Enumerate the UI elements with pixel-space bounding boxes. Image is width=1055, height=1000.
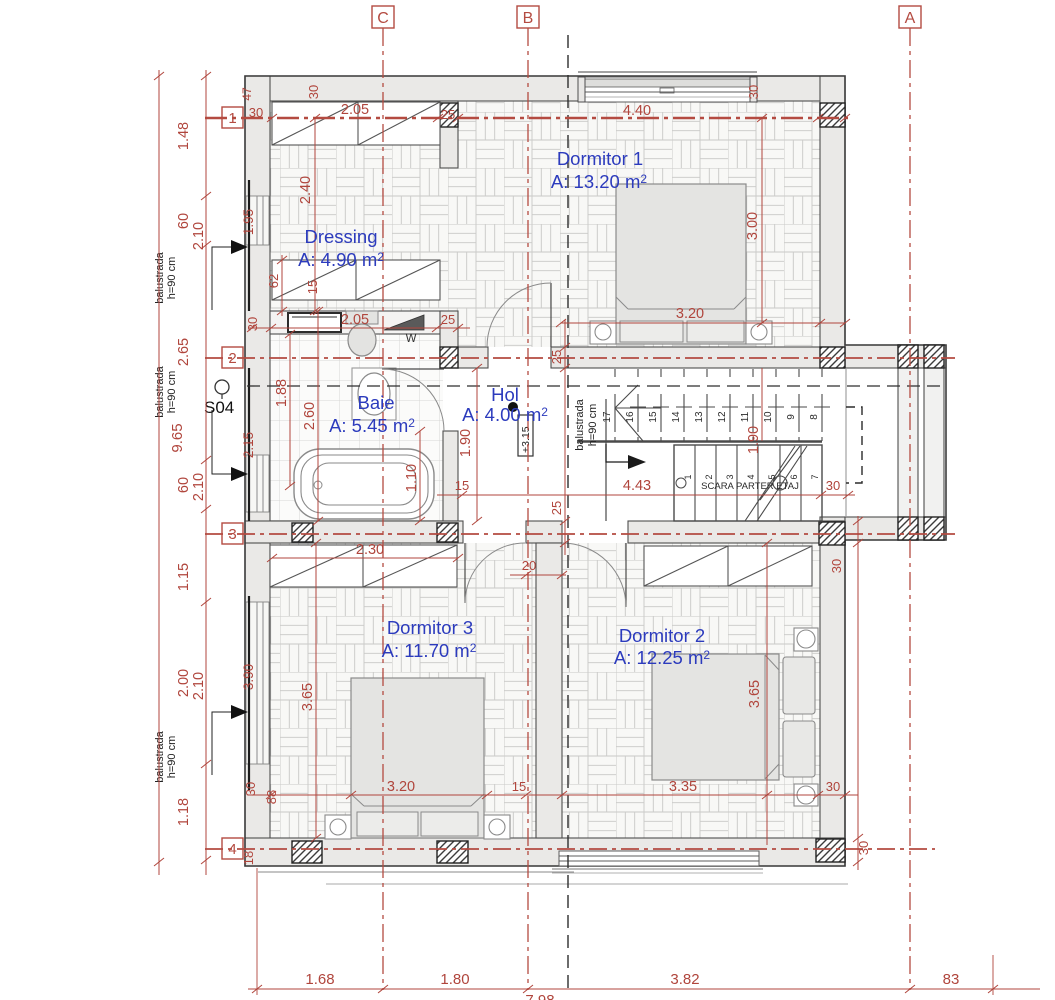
svg-text:h=90 cm: h=90 cm xyxy=(166,257,178,300)
svg-text:2.15: 2.15 xyxy=(241,432,256,458)
svg-text:A: 11.70 m2: A: 11.70 m2 xyxy=(382,640,477,661)
svg-text:Dormitor 3: Dormitor 3 xyxy=(387,617,473,638)
svg-text:16: 16 xyxy=(625,411,636,423)
svg-text:3.90: 3.90 xyxy=(241,664,256,690)
svg-text:Dormitor 1: Dormitor 1 xyxy=(557,148,643,169)
svg-text:4: 4 xyxy=(746,474,756,479)
svg-text:15: 15 xyxy=(305,280,320,294)
svg-text:A: 4.90 m2: A: 4.90 m2 xyxy=(298,249,384,270)
svg-text:15: 15 xyxy=(648,411,659,423)
svg-text:1.80: 1.80 xyxy=(440,971,469,988)
svg-text:2.30: 2.30 xyxy=(356,542,384,558)
svg-text:1.18: 1.18 xyxy=(176,798,192,826)
svg-text:30: 30 xyxy=(826,779,840,794)
svg-text:25: 25 xyxy=(549,350,564,364)
svg-text:2.60: 2.60 xyxy=(302,402,318,430)
svg-text:A: 5.45 m2: A: 5.45 m2 xyxy=(329,415,415,436)
svg-text:4.43: 4.43 xyxy=(623,478,651,494)
svg-text:3.20: 3.20 xyxy=(387,779,415,795)
svg-text:SCARA PARTER ETAJ: SCARA PARTER ETAJ xyxy=(701,481,799,492)
svg-text:4: 4 xyxy=(228,841,236,858)
svg-text:h=90 cm: h=90 cm xyxy=(587,404,599,447)
svg-text:2.00: 2.00 xyxy=(176,669,192,697)
svg-text:A: A xyxy=(905,10,916,27)
svg-text:1.95: 1.95 xyxy=(241,209,256,235)
svg-text:47: 47 xyxy=(240,87,254,101)
svg-text:25: 25 xyxy=(549,501,564,515)
svg-text:3.20: 3.20 xyxy=(676,306,704,322)
svg-text:3: 3 xyxy=(725,474,735,479)
svg-text:S04: S04 xyxy=(204,398,234,417)
svg-text:h=90 cm: h=90 cm xyxy=(166,736,178,779)
svg-text:1.10: 1.10 xyxy=(404,464,420,492)
svg-text:2.65: 2.65 xyxy=(176,338,192,366)
svg-text:3.65: 3.65 xyxy=(747,680,763,708)
svg-text:1: 1 xyxy=(683,474,693,479)
svg-text:2.05: 2.05 xyxy=(341,102,369,118)
svg-text:1: 1 xyxy=(228,110,236,127)
svg-text:W: W xyxy=(406,333,417,345)
svg-text:1.48: 1.48 xyxy=(176,122,192,150)
svg-text:17: 17 xyxy=(602,411,613,423)
svg-text:9: 9 xyxy=(786,414,797,420)
svg-text:Baie: Baie xyxy=(357,392,394,413)
svg-text:C: C xyxy=(377,10,389,27)
svg-text:7.98: 7.98 xyxy=(525,992,554,1000)
svg-text:30: 30 xyxy=(856,841,871,855)
svg-text:10: 10 xyxy=(763,411,774,423)
svg-text:3.35: 3.35 xyxy=(669,779,697,795)
svg-text:2.40: 2.40 xyxy=(298,176,314,204)
svg-text:balustrada: balustrada xyxy=(154,730,166,782)
svg-text:5: 5 xyxy=(767,474,777,479)
svg-text:8: 8 xyxy=(809,414,820,420)
svg-text:2: 2 xyxy=(704,474,714,479)
svg-text:12: 12 xyxy=(717,411,728,423)
svg-text:30: 30 xyxy=(245,317,260,331)
svg-text:3.65: 3.65 xyxy=(300,683,316,711)
svg-text:1.90: 1.90 xyxy=(746,426,762,454)
svg-text:3: 3 xyxy=(228,526,236,543)
svg-text:25: 25 xyxy=(441,312,455,327)
svg-text:62: 62 xyxy=(266,274,281,288)
svg-text:A: 4.00 m2: A: 4.00 m2 xyxy=(462,404,548,425)
svg-text:balustrada: balustrada xyxy=(154,251,166,303)
svg-text:7: 7 xyxy=(810,474,820,479)
svg-text:Hol: Hol xyxy=(491,384,519,405)
svg-text:4.40: 4.40 xyxy=(623,103,651,119)
svg-text:83: 83 xyxy=(943,971,960,988)
svg-text:h=90 cm: h=90 cm xyxy=(166,371,178,414)
svg-text:Dormitor 2: Dormitor 2 xyxy=(619,625,705,646)
svg-text:15: 15 xyxy=(512,779,526,794)
svg-text:balustrada: balustrada xyxy=(154,365,166,417)
svg-text:1.68: 1.68 xyxy=(305,971,334,988)
svg-text:11: 11 xyxy=(740,411,751,422)
svg-text:2.05: 2.05 xyxy=(341,312,369,328)
svg-text:30: 30 xyxy=(746,85,761,99)
svg-text:30: 30 xyxy=(829,559,844,573)
svg-text:60: 60 xyxy=(176,477,192,493)
svg-text:6: 6 xyxy=(789,474,799,479)
svg-text:1.90: 1.90 xyxy=(458,429,474,457)
svg-text:3.00: 3.00 xyxy=(745,212,761,240)
svg-text:25: 25 xyxy=(441,107,455,122)
svg-text:88: 88 xyxy=(264,790,279,804)
svg-text:13: 13 xyxy=(694,411,705,423)
svg-text:30: 30 xyxy=(826,478,840,493)
svg-text:A: 13.20 m2: A: 13.20 m2 xyxy=(551,171,647,192)
svg-text:2.10: 2.10 xyxy=(191,473,207,501)
svg-text:30: 30 xyxy=(306,85,321,99)
svg-text:60: 60 xyxy=(176,213,192,229)
svg-text:15: 15 xyxy=(455,478,469,493)
svg-text:1.88: 1.88 xyxy=(274,379,290,407)
svg-text:30: 30 xyxy=(243,782,258,796)
svg-text:18: 18 xyxy=(241,851,256,865)
svg-text:3.82: 3.82 xyxy=(670,971,699,988)
svg-text:+3.15: +3.15 xyxy=(520,426,532,453)
svg-text:14: 14 xyxy=(671,411,682,423)
svg-text:balustrada: balustrada xyxy=(574,398,586,450)
svg-text:1.15: 1.15 xyxy=(176,563,192,591)
svg-text:20: 20 xyxy=(522,558,536,573)
svg-text:9.65: 9.65 xyxy=(169,423,186,452)
svg-text:2.10: 2.10 xyxy=(191,222,207,250)
svg-text:2.10: 2.10 xyxy=(191,672,207,700)
svg-text:2: 2 xyxy=(228,350,236,367)
svg-text:Dressing: Dressing xyxy=(305,226,378,247)
svg-text:A: 12.25 m2: A: 12.25 m2 xyxy=(614,647,710,668)
svg-text:B: B xyxy=(523,10,534,27)
svg-text:30: 30 xyxy=(249,105,263,120)
